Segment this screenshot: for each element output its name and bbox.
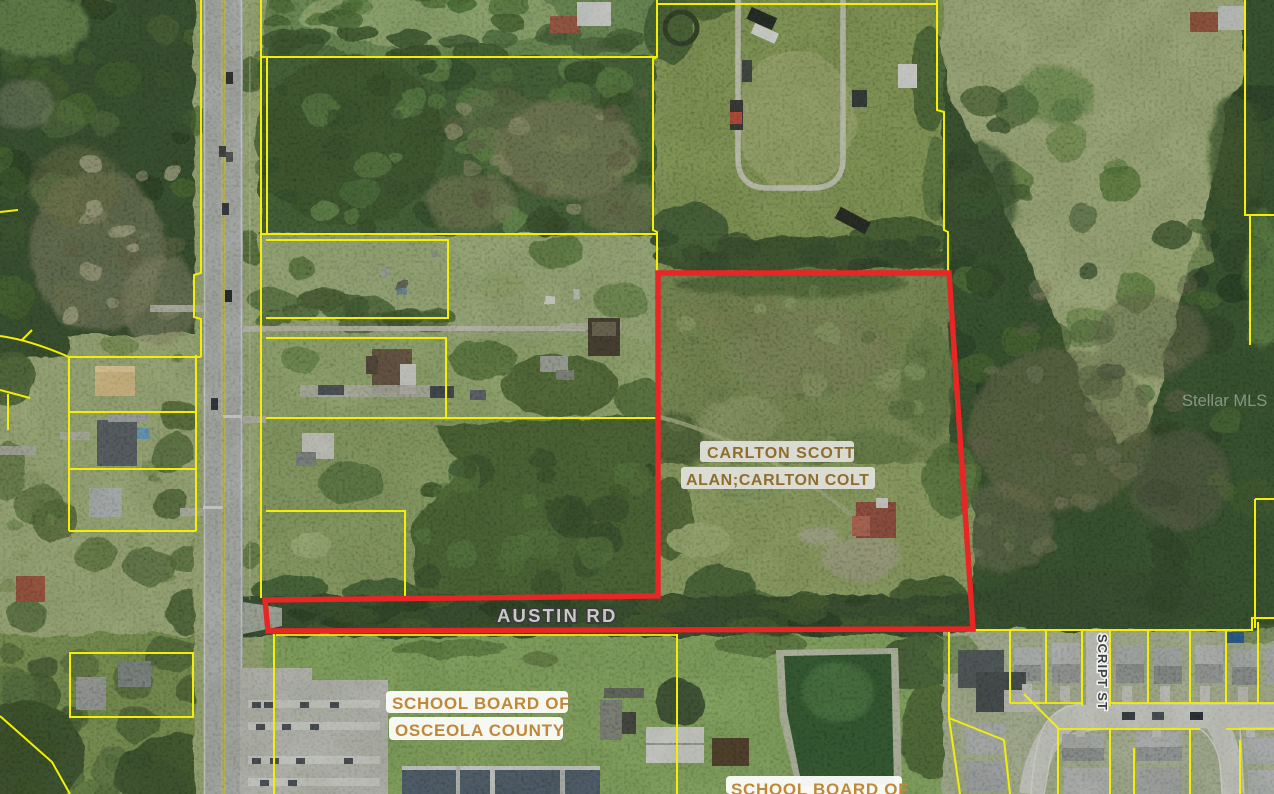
svg-text:SCRIPT ST: SCRIPT ST bbox=[1095, 634, 1110, 711]
svg-text:SCHOOL BOARD OF: SCHOOL BOARD OF bbox=[731, 780, 909, 794]
svg-text:OSCEOLA COUNTY: OSCEOLA COUNTY bbox=[395, 721, 565, 740]
svg-text:CARLTON SCOTT: CARLTON SCOTT bbox=[707, 445, 855, 462]
svg-text:SCHOOL BOARD OF: SCHOOL BOARD OF bbox=[392, 694, 570, 713]
svg-text:Stellar MLS: Stellar MLS bbox=[1182, 392, 1267, 410]
svg-text:ALAN;CARLTON COLT: ALAN;CARLTON COLT bbox=[686, 472, 870, 489]
svg-text:AUSTIN RD: AUSTIN RD bbox=[497, 605, 618, 626]
